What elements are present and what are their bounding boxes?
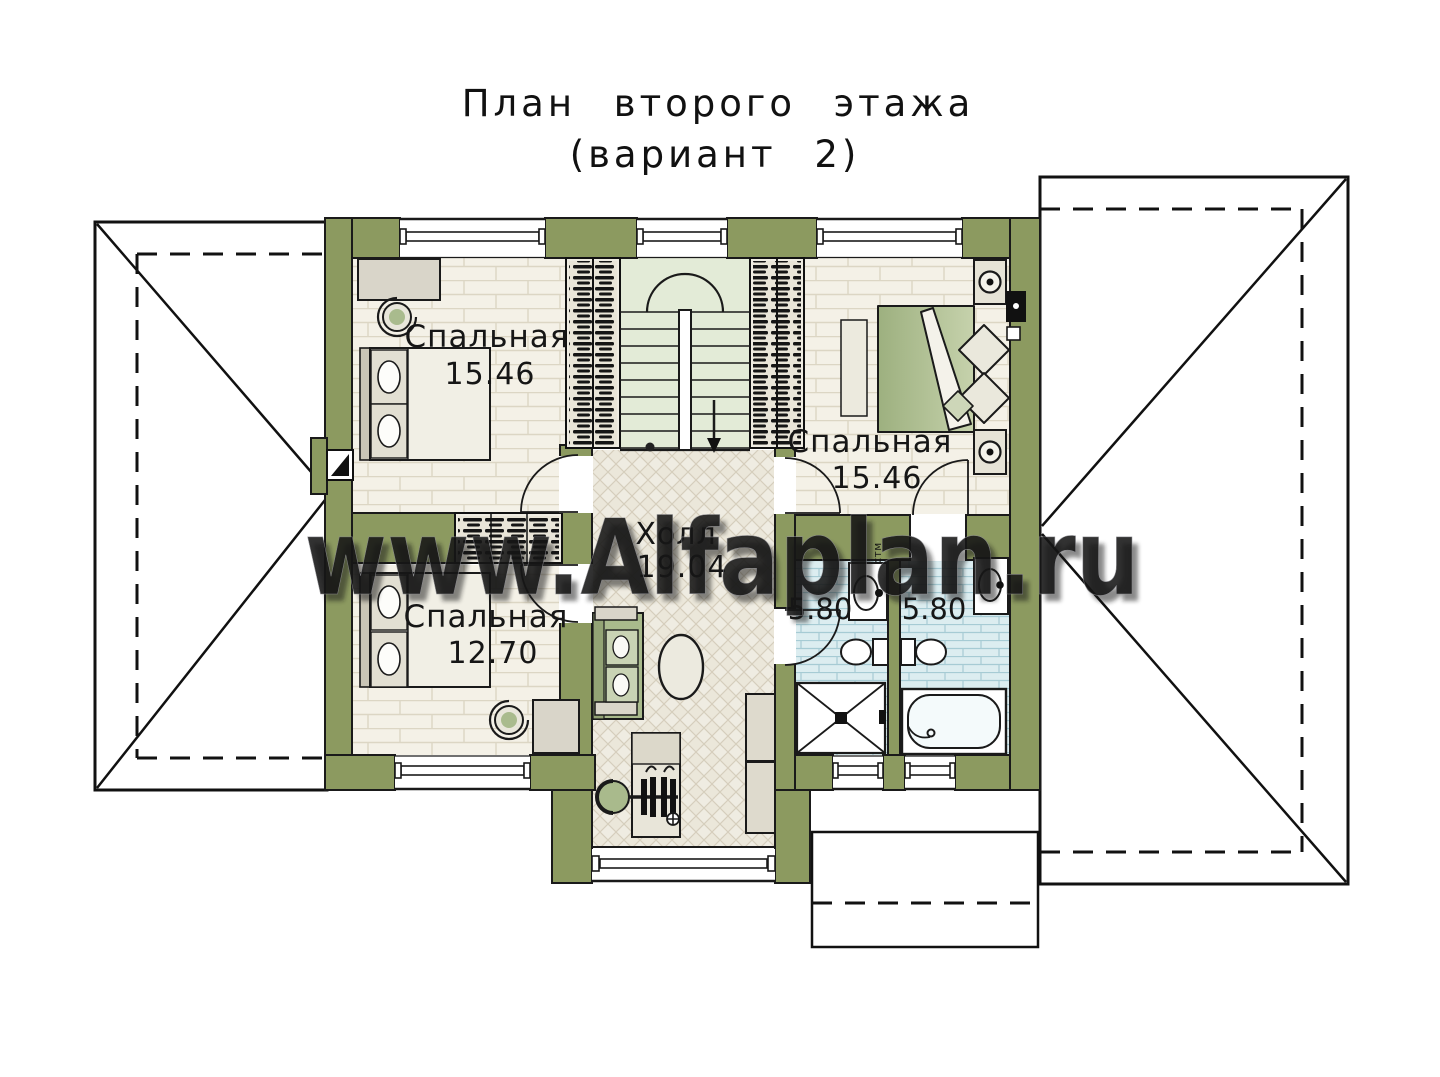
wall-bay-pier-left [552, 790, 592, 883]
wall-bottom-bath-3 [955, 755, 1010, 790]
bedroom-top-left-area: 15.46 [445, 357, 536, 392]
window-bath-left [833, 756, 883, 789]
chimney-notch [311, 438, 327, 494]
desk-top-left [358, 259, 440, 300]
coffee-table-hall [659, 635, 703, 699]
wall-top-3 [727, 218, 817, 258]
wall-bottom-bath-2 [883, 755, 905, 790]
bedroom-right-name: Спальная [788, 424, 953, 460]
bedroom-bottom-left-area: 12.70 [448, 636, 539, 671]
window-bath-right [905, 756, 955, 789]
stool-hall [597, 781, 629, 813]
floor-plan-svg: Спальная 15.46 Спальная 15.46 Спальная 1… [0, 0, 1440, 1077]
wall-bottom-bath-1 [795, 755, 833, 790]
window-top-3 [817, 219, 962, 258]
wall-bay-pier-right [775, 790, 810, 883]
left-roof [95, 222, 327, 790]
wall-hall-right-c [775, 663, 795, 790]
toilet-bath-left [841, 639, 888, 665]
watermark: www.Alfaplan.ru www.Alfaplan.ru [305, 497, 1146, 626]
cabinet-hall-bottom [746, 762, 775, 833]
desk-bottom-left [533, 700, 579, 753]
shower-bath-left [797, 683, 886, 753]
bathtub-bath-right [902, 689, 1006, 754]
plan-title: План второго этажа (вариант 2) [462, 82, 975, 176]
rug-right-bedroom [841, 320, 867, 416]
window-hall-bay [592, 847, 775, 881]
wall-top-2 [545, 218, 637, 258]
nightstand-top [974, 260, 1006, 304]
porch-roof [812, 832, 1038, 947]
bedroom-top-left-name: Спальная [405, 319, 570, 355]
window-bottom-left [395, 756, 530, 789]
porch-roof-outline [812, 832, 1038, 947]
stair-newel [646, 443, 655, 452]
bedroom-right-area: 15.46 [832, 461, 923, 496]
wall-bottom-left-2 [530, 755, 595, 790]
plan-title-line2: (вариант 2) [570, 133, 861, 176]
watermark-text: www.Alfaplan.ru [305, 497, 1140, 619]
cabinet-hall-top [746, 694, 775, 761]
window-top-1 [400, 219, 545, 258]
wall-bottom-left-1 [325, 755, 395, 790]
toilet-bath-right [901, 639, 946, 665]
window-top-2 [637, 219, 727, 258]
flue [327, 450, 353, 480]
stair-stringer [679, 310, 691, 450]
nightstand-bottom [974, 430, 1006, 474]
plan-title-line1: План второго этажа [462, 82, 975, 125]
left-roof-outline [95, 222, 327, 790]
